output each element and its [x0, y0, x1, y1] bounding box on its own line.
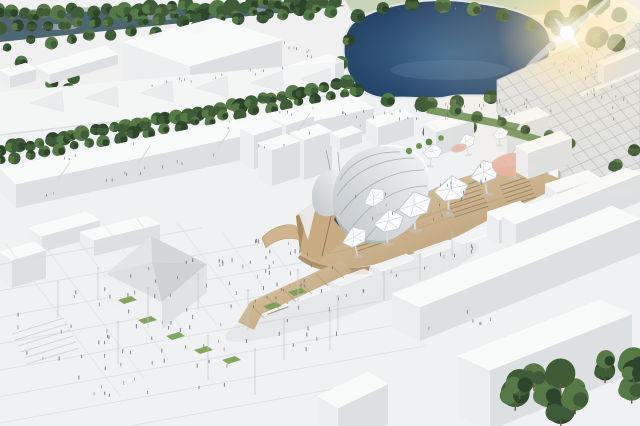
person — [236, 291, 237, 295]
person — [338, 297, 339, 300]
person — [447, 184, 448, 187]
person — [440, 253, 441, 257]
person — [154, 294, 155, 298]
person — [192, 315, 193, 319]
person — [307, 326, 308, 330]
person — [224, 347, 225, 351]
person — [191, 80, 192, 82]
person — [101, 385, 102, 388]
person — [166, 80, 167, 83]
person — [255, 73, 256, 76]
person — [182, 162, 183, 165]
person — [59, 356, 60, 360]
person — [273, 261, 274, 264]
person — [288, 242, 289, 245]
person — [451, 186, 452, 189]
person — [263, 69, 264, 72]
person — [287, 111, 288, 114]
person — [307, 252, 308, 256]
person — [152, 361, 153, 364]
person — [164, 359, 165, 363]
person — [109, 394, 110, 397]
person — [451, 181, 452, 184]
person — [304, 279, 305, 282]
person — [181, 80, 182, 82]
person — [400, 109, 401, 112]
person — [215, 76, 216, 79]
person — [151, 337, 152, 340]
person — [428, 327, 429, 330]
person — [284, 41, 285, 44]
person — [258, 239, 259, 243]
person — [448, 209, 449, 212]
person — [42, 357, 43, 360]
person — [70, 324, 71, 327]
person — [391, 270, 392, 273]
person — [360, 124, 361, 126]
person — [356, 116, 357, 119]
person — [104, 341, 105, 344]
person — [78, 376, 79, 380]
person — [246, 339, 247, 343]
person — [471, 244, 472, 248]
person — [316, 337, 317, 341]
person — [120, 363, 121, 367]
person — [471, 250, 472, 254]
person — [69, 158, 70, 160]
person — [18, 313, 19, 317]
person — [224, 383, 225, 387]
person — [301, 284, 302, 287]
person — [213, 153, 214, 156]
person — [98, 340, 99, 344]
person — [184, 78, 185, 81]
person — [346, 294, 347, 297]
deck-planting — [416, 143, 422, 149]
person — [490, 317, 491, 321]
person — [104, 392, 105, 396]
person — [64, 157, 65, 160]
person — [17, 325, 18, 329]
person — [332, 266, 333, 269]
person — [231, 305, 232, 308]
person — [306, 347, 307, 351]
person — [134, 377, 135, 380]
person — [472, 319, 473, 322]
person — [109, 295, 110, 299]
person — [265, 256, 266, 259]
person — [75, 290, 76, 294]
person — [161, 348, 162, 352]
person — [461, 197, 462, 200]
person — [61, 330, 62, 333]
person — [124, 172, 125, 175]
person — [440, 183, 441, 186]
person — [291, 113, 292, 116]
person — [295, 249, 296, 253]
person — [106, 329, 107, 333]
person — [355, 195, 356, 198]
person — [296, 47, 297, 50]
person — [329, 307, 330, 311]
person — [219, 259, 220, 262]
person — [276, 282, 277, 286]
person — [443, 255, 444, 259]
person — [392, 212, 393, 215]
person — [126, 173, 127, 176]
person — [311, 55, 312, 58]
person — [289, 284, 290, 288]
person — [108, 335, 109, 339]
person — [242, 265, 243, 269]
person — [186, 261, 187, 264]
person — [311, 264, 312, 268]
person — [416, 117, 417, 120]
person — [396, 274, 397, 277]
person — [222, 260, 223, 264]
person — [250, 68, 251, 71]
person — [321, 289, 322, 293]
person — [93, 392, 94, 395]
person — [345, 113, 346, 115]
deck-planting — [406, 148, 412, 154]
person — [269, 250, 270, 254]
person — [290, 252, 291, 255]
person — [112, 178, 113, 181]
person — [253, 305, 254, 308]
person — [208, 360, 209, 363]
person — [220, 323, 221, 326]
person — [289, 47, 290, 50]
person — [467, 310, 468, 314]
person — [130, 351, 131, 354]
person — [307, 55, 308, 57]
person — [279, 332, 280, 336]
person — [309, 132, 310, 135]
person — [170, 294, 171, 297]
person — [219, 264, 220, 267]
person — [203, 344, 204, 347]
person — [122, 349, 123, 353]
person — [133, 142, 134, 145]
person — [267, 296, 268, 299]
person — [287, 319, 288, 322]
person — [385, 192, 386, 195]
person — [258, 144, 259, 147]
person — [290, 271, 291, 275]
person — [472, 246, 473, 250]
person — [81, 355, 82, 358]
person — [53, 192, 54, 195]
person — [134, 291, 135, 295]
person — [136, 324, 137, 328]
person — [269, 265, 270, 269]
person — [177, 160, 178, 163]
architectural-render-image — [0, 0, 640, 426]
person — [148, 267, 149, 270]
person — [363, 289, 364, 293]
person — [336, 332, 337, 336]
person — [282, 67, 283, 70]
person — [479, 322, 480, 325]
person — [284, 144, 285, 147]
person — [255, 240, 256, 244]
person — [74, 295, 75, 298]
person — [439, 204, 440, 207]
person — [228, 127, 229, 129]
person — [155, 279, 156, 282]
person — [162, 165, 163, 168]
person — [372, 217, 373, 221]
person — [424, 267, 425, 270]
person — [144, 166, 145, 169]
person — [433, 218, 434, 221]
person — [107, 335, 108, 338]
person — [218, 340, 219, 343]
person — [378, 6, 379, 8]
person — [306, 332, 307, 336]
person — [343, 112, 344, 115]
person — [399, 117, 400, 120]
person — [229, 282, 230, 286]
person — [168, 326, 169, 329]
person — [162, 321, 163, 324]
person — [232, 258, 233, 262]
person — [481, 322, 482, 325]
person — [373, 117, 374, 119]
person — [250, 261, 251, 264]
person — [206, 284, 207, 288]
person — [269, 271, 270, 275]
person — [386, 204, 387, 207]
person — [105, 366, 106, 370]
person — [363, 289, 364, 293]
person — [99, 303, 100, 307]
person — [294, 46, 295, 48]
person — [283, 289, 284, 292]
person — [123, 381, 124, 385]
person — [197, 363, 198, 367]
person — [342, 111, 343, 114]
person — [192, 258, 193, 262]
person — [263, 286, 264, 290]
person — [265, 269, 266, 273]
person — [384, 112, 385, 115]
person — [177, 276, 178, 279]
person — [179, 77, 180, 80]
person — [454, 254, 455, 257]
person — [26, 351, 27, 355]
person — [140, 172, 141, 175]
person — [147, 391, 148, 394]
person — [298, 306, 299, 310]
render-canvas — [0, 0, 640, 426]
building-cube-k3 — [258, 134, 300, 186]
person — [186, 308, 187, 312]
person — [264, 146, 265, 149]
person — [104, 354, 105, 358]
person — [180, 328, 181, 332]
person — [229, 121, 230, 124]
person — [130, 274, 131, 277]
deck-planting — [426, 139, 433, 146]
person — [275, 297, 276, 300]
person — [198, 386, 199, 389]
person — [128, 310, 129, 314]
person — [255, 299, 256, 302]
person — [46, 194, 47, 197]
person — [256, 239, 257, 243]
person — [281, 288, 282, 291]
person — [299, 250, 300, 254]
person — [185, 345, 186, 348]
person — [127, 293, 128, 297]
sun-core — [560, 26, 574, 40]
person — [170, 321, 171, 325]
person — [313, 107, 314, 110]
person — [407, 117, 408, 120]
person — [152, 85, 153, 87]
person — [304, 284, 305, 287]
person — [226, 364, 227, 368]
person — [257, 274, 258, 278]
person — [221, 73, 222, 76]
person — [293, 343, 294, 346]
person — [280, 111, 281, 114]
person — [308, 49, 309, 51]
person — [104, 287, 105, 291]
person — [463, 191, 464, 194]
person — [307, 51, 308, 53]
person — [363, 110, 364, 113]
person — [392, 113, 393, 115]
person — [106, 179, 107, 182]
person — [441, 214, 442, 217]
person — [189, 325, 190, 329]
person — [75, 154, 76, 157]
